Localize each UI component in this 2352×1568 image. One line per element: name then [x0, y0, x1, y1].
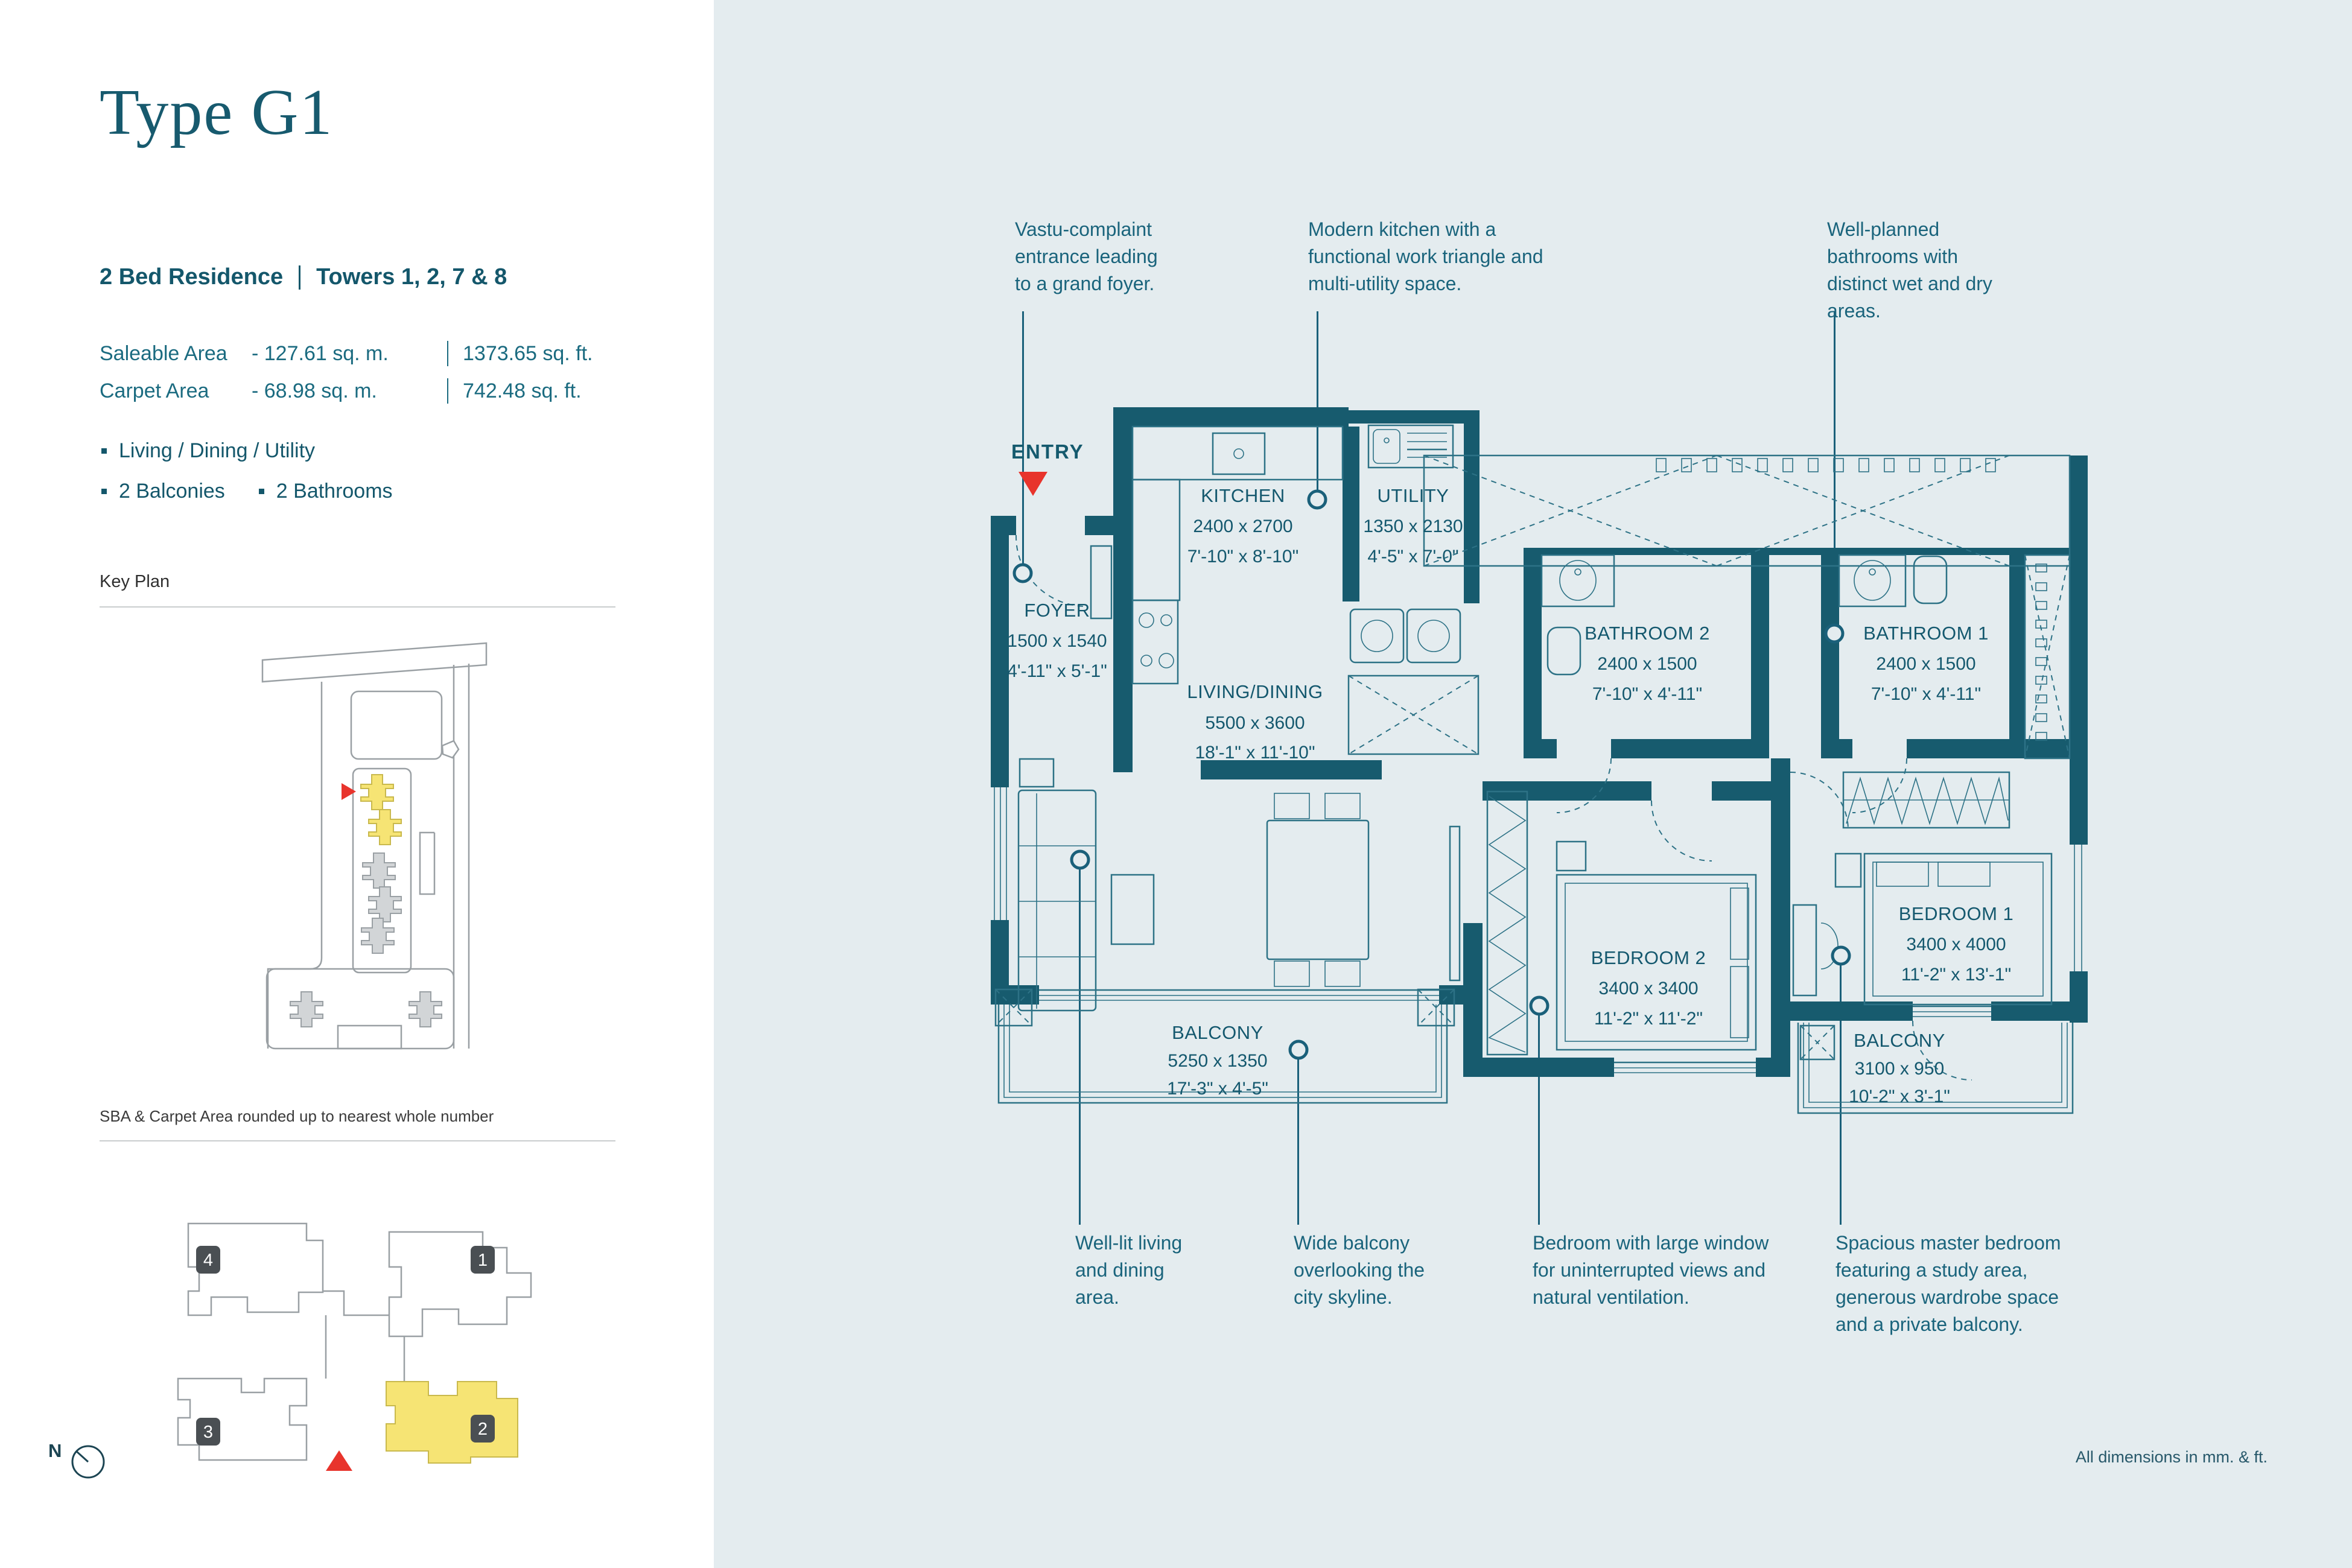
svg-text:5500 x 3600: 5500 x 3600 [1205, 713, 1305, 733]
bullet-icon [101, 489, 107, 494]
residence-type: 2 Bed Residence [100, 264, 283, 290]
svg-text:7'-10" x 4'-11": 7'-10" x 4'-11" [1592, 684, 1702, 704]
highlighted-tower-footprint [361, 775, 393, 810]
tower-4-number: 4 [203, 1251, 213, 1270]
svg-text:17'-3" x 4'-5": 17'-3" x 4'-5" [1167, 1079, 1268, 1099]
junction-kitchen [1309, 491, 1326, 508]
wc [1914, 556, 1947, 603]
foyer-cabinet [1091, 546, 1111, 618]
annotation-bedroom: Bedroom with large window for uninterrup… [1533, 1230, 1792, 1311]
junction-balcony [1290, 1041, 1307, 1058]
svg-text:BALCONY: BALCONY [1854, 1030, 1945, 1051]
annotation-living: Well-lit living and dining area. [1075, 1230, 1211, 1311]
site-road-top [262, 643, 486, 682]
coffee-table [1111, 875, 1154, 944]
junction-foyer [1014, 565, 1031, 582]
entry-label: ENTRY [1011, 440, 1084, 463]
svg-text:2400 x 1500: 2400 x 1500 [1876, 654, 1975, 674]
tower-list: Towers 1, 2, 7 & 8 [316, 264, 507, 290]
svg-text:2400 x 2700: 2400 x 2700 [1193, 516, 1292, 536]
area-divider [447, 341, 448, 366]
sba-note: SBA & Carpet Area rounded up to nearest … [100, 1107, 494, 1126]
svg-text:FOYER: FOYER [1024, 600, 1090, 621]
site-pond [442, 741, 459, 758]
saleable-area-imperial: 1373.65 sq. ft. [463, 342, 593, 366]
compass-icon [66, 1439, 109, 1481]
side-table [1557, 842, 1586, 871]
carpet-area-row: Carpet Area - 68.98 sq. m. 742.48 sq. ft… [100, 372, 593, 410]
svg-text:10'-2" x 3'-1": 10'-2" x 3'-1" [1849, 1087, 1950, 1106]
feature-living: Living / Dining / Utility [119, 439, 315, 463]
svg-text:4'-5" x 7'-0": 4'-5" x 7'-0" [1367, 547, 1458, 567]
wc [1548, 627, 1580, 674]
area-divider [447, 378, 448, 404]
pillow [1877, 862, 1928, 886]
svg-text:1350 x 2130: 1350 x 2130 [1363, 516, 1463, 536]
pillow [1731, 888, 1749, 959]
leader-junctions [1014, 491, 1849, 1058]
tower-2-number: 2 [478, 1420, 488, 1439]
side-table [1020, 759, 1054, 787]
key-plan-title: Key Plan [100, 572, 170, 592]
washing-machine [1407, 609, 1460, 662]
feature-item: Living / Dining / Utility [101, 439, 393, 463]
bullet-icon [101, 448, 107, 454]
feature-bathrooms: 2 Bathrooms [276, 480, 393, 503]
annotation-kitchen: Modern kitchen with a functional work tr… [1308, 216, 1556, 297]
tower-1-footprint [389, 1232, 531, 1336]
annotation-balcony: Wide balcony overlooking the city skylin… [1294, 1230, 1426, 1311]
divider-line [100, 606, 615, 608]
saleable-area-row: Saleable Area - 127.61 sq. m. 1373.65 sq… [100, 335, 593, 372]
chair [1274, 793, 1309, 819]
bathroom1-fixtures [1839, 555, 1947, 606]
tower-3-number: 3 [203, 1423, 213, 1442]
svg-text:18'-1" x 11'-10": 18'-1" x 11'-10" [1195, 743, 1315, 763]
floor-plan: ENTRY [953, 398, 2088, 1131]
entry-arrow-icon [1019, 472, 1047, 496]
site-boundary-left [268, 682, 322, 1049]
annotation-bathrooms: Well-planned bathrooms with distinct wet… [1827, 216, 2020, 325]
junction-bedroom2 [1531, 997, 1548, 1014]
divider-line [100, 1140, 615, 1141]
svg-text:BEDROOM 1: BEDROOM 1 [1899, 903, 2014, 924]
svg-text:BATHROOM 2: BATHROOM 2 [1584, 623, 1710, 644]
bullet-icon [259, 489, 264, 494]
feature-list: Living / Dining / Utility 2 Balconies 2 … [101, 439, 393, 520]
svg-text:4'-11" x 5'-1": 4'-11" x 5'-1" [1007, 661, 1107, 681]
saleable-area-metric: - 127.61 sq. m. [252, 342, 433, 366]
side-table [1836, 854, 1861, 887]
svg-text:5250 x 1350: 5250 x 1350 [1168, 1051, 1267, 1071]
svg-text:UTILITY: UTILITY [1378, 485, 1449, 506]
tower-footprint [409, 992, 442, 1027]
page-title: Type G1 [100, 75, 333, 150]
chair [1274, 961, 1309, 986]
carpet-area-imperial: 742.48 sq. ft. [463, 379, 582, 403]
carpet-area-metric: - 68.98 sq. m. [252, 379, 433, 403]
feature-balconies: 2 Balconies [119, 480, 225, 503]
tower-footprint [363, 853, 395, 888]
svg-text:7'-10" x 8'-10": 7'-10" x 8'-10" [1187, 547, 1299, 567]
carpet-area-label: Carpet Area [100, 379, 252, 403]
svg-text:LIVING/DINING: LIVING/DINING [1187, 681, 1323, 702]
tower-3-footprint [178, 1379, 307, 1460]
saleable-area-label: Saleable Area [100, 342, 252, 366]
residence-subtitle: 2 Bed Residence Towers 1, 2, 7 & 8 [100, 264, 507, 290]
junction-living [1072, 851, 1089, 868]
svg-text:11'-2" x 11'-2": 11'-2" x 11'-2" [1594, 1009, 1703, 1029]
tower-cluster-plan: 4 1 3 2 [145, 1201, 579, 1472]
dining-table [1267, 821, 1368, 959]
svg-text:2400 x 1500: 2400 x 1500 [1597, 654, 1697, 674]
junction-bathroom [1826, 625, 1843, 642]
living-furniture [1019, 759, 1460, 1011]
location-arrow-icon [342, 783, 356, 800]
annotation-entrance: Vastu-complaint entrance leading to a gr… [1015, 216, 1169, 297]
wardrobe [1487, 792, 1527, 1055]
svg-text:BEDROOM 2: BEDROOM 2 [1591, 947, 1706, 968]
dimensions-note: All dimensions in mm. & ft. [2076, 1448, 2268, 1467]
svg-text:11'-2" x 13'-1": 11'-2" x 13'-1" [1901, 965, 2011, 985]
svg-text:BATHROOM 1: BATHROOM 1 [1863, 623, 1989, 644]
area-table: Saleable Area - 127.61 sq. m. 1373.65 sq… [100, 335, 593, 410]
svg-text:1500 x 1540: 1500 x 1540 [1007, 631, 1107, 651]
site-road-right [454, 664, 469, 1049]
north-pointer-icon [326, 1450, 352, 1471]
subtitle-divider [299, 265, 300, 290]
north-label: N [48, 1440, 62, 1462]
hob [1133, 600, 1178, 684]
tower-1-number: 1 [478, 1251, 488, 1270]
north-indicator: N [48, 1439, 109, 1481]
highlighted-tower-footprint [369, 810, 401, 845]
right-shaft [2025, 555, 2070, 758]
tower-footprint [369, 887, 401, 922]
washing-machine [1350, 609, 1403, 662]
tower-footprint [361, 918, 394, 953]
site-courtyard [351, 691, 442, 759]
junction-bedroom1 [1832, 947, 1849, 964]
svg-text:KITCHEN: KITCHEN [1201, 485, 1285, 506]
study-desk [1793, 905, 1816, 995]
svg-text:3400 x 4000: 3400 x 4000 [1906, 935, 2006, 954]
svg-text:BALCONY: BALCONY [1172, 1022, 1263, 1043]
svg-text:3100 x 950: 3100 x 950 [1855, 1059, 1944, 1079]
tower-2-footprint-highlighted [386, 1382, 518, 1463]
tower-footprint [290, 992, 323, 1027]
chair [1325, 793, 1360, 819]
pillow [1731, 967, 1749, 1038]
tv-console [1450, 827, 1460, 980]
sofa [1019, 790, 1096, 1011]
site-road-stub [420, 833, 434, 894]
svg-text:7'-10" x 4'-11": 7'-10" x 4'-11" [1871, 684, 1981, 704]
annotation-master-bedroom: Spacious master bedroom featuring a stud… [1836, 1230, 2095, 1338]
utility-fixtures [1349, 425, 1478, 754]
svg-text:3400 x 3400: 3400 x 3400 [1598, 979, 1698, 998]
clubhouse-outline [338, 1026, 401, 1049]
pillow [1938, 862, 1990, 886]
key-plan-diagram [253, 633, 495, 1080]
chair [1325, 961, 1360, 986]
feature-item: 2 Balconies 2 Bathrooms [101, 480, 393, 503]
